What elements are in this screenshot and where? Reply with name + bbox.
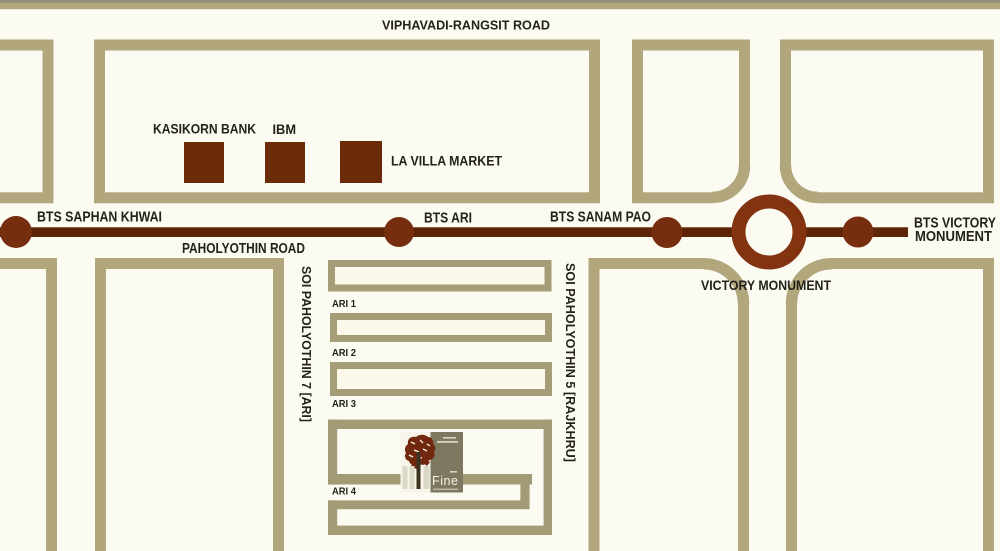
svg-text:ARI 1: ARI 1 <box>332 299 356 310</box>
svg-text:Fine: Fine <box>432 474 458 488</box>
svg-text:KASIKORN BANK: KASIKORN BANK <box>153 121 256 137</box>
svg-text:BTS SANAM PAO: BTS SANAM PAO <box>550 210 651 226</box>
svg-text:BTS ARI: BTS ARI <box>424 211 472 227</box>
svg-text:IBM: IBM <box>273 121 297 137</box>
svg-text:LA VILLA MARKET: LA VILLA MARKET <box>391 154 503 169</box>
svg-text:SOI PAHOLYOTHIN 5 [RAJKHRU]: SOI PAHOLYOTHIN 5 [RAJKHRU] <box>563 263 578 462</box>
svg-text:BTS SAPHAN KHWAI: BTS SAPHAN KHWAI <box>37 210 162 226</box>
svg-text:ARI 4: ARI 4 <box>332 487 356 498</box>
svg-text:MONUMENT: MONUMENT <box>915 229 992 245</box>
svg-text:VIPHAVADI-RANGSIT ROAD: VIPHAVADI-RANGSIT ROAD <box>382 18 550 33</box>
svg-text:VICTORY MONUMENT: VICTORY MONUMENT <box>701 277 831 293</box>
svg-text:PAHOLYOTHIN ROAD: PAHOLYOTHIN ROAD <box>182 241 305 257</box>
svg-text:SOI PAHOLYOTHIN 7 [ARI]: SOI PAHOLYOTHIN 7 [ARI] <box>299 266 314 422</box>
svg-text:ARI 2: ARI 2 <box>332 348 356 359</box>
svg-text:ARI 3: ARI 3 <box>332 399 356 410</box>
